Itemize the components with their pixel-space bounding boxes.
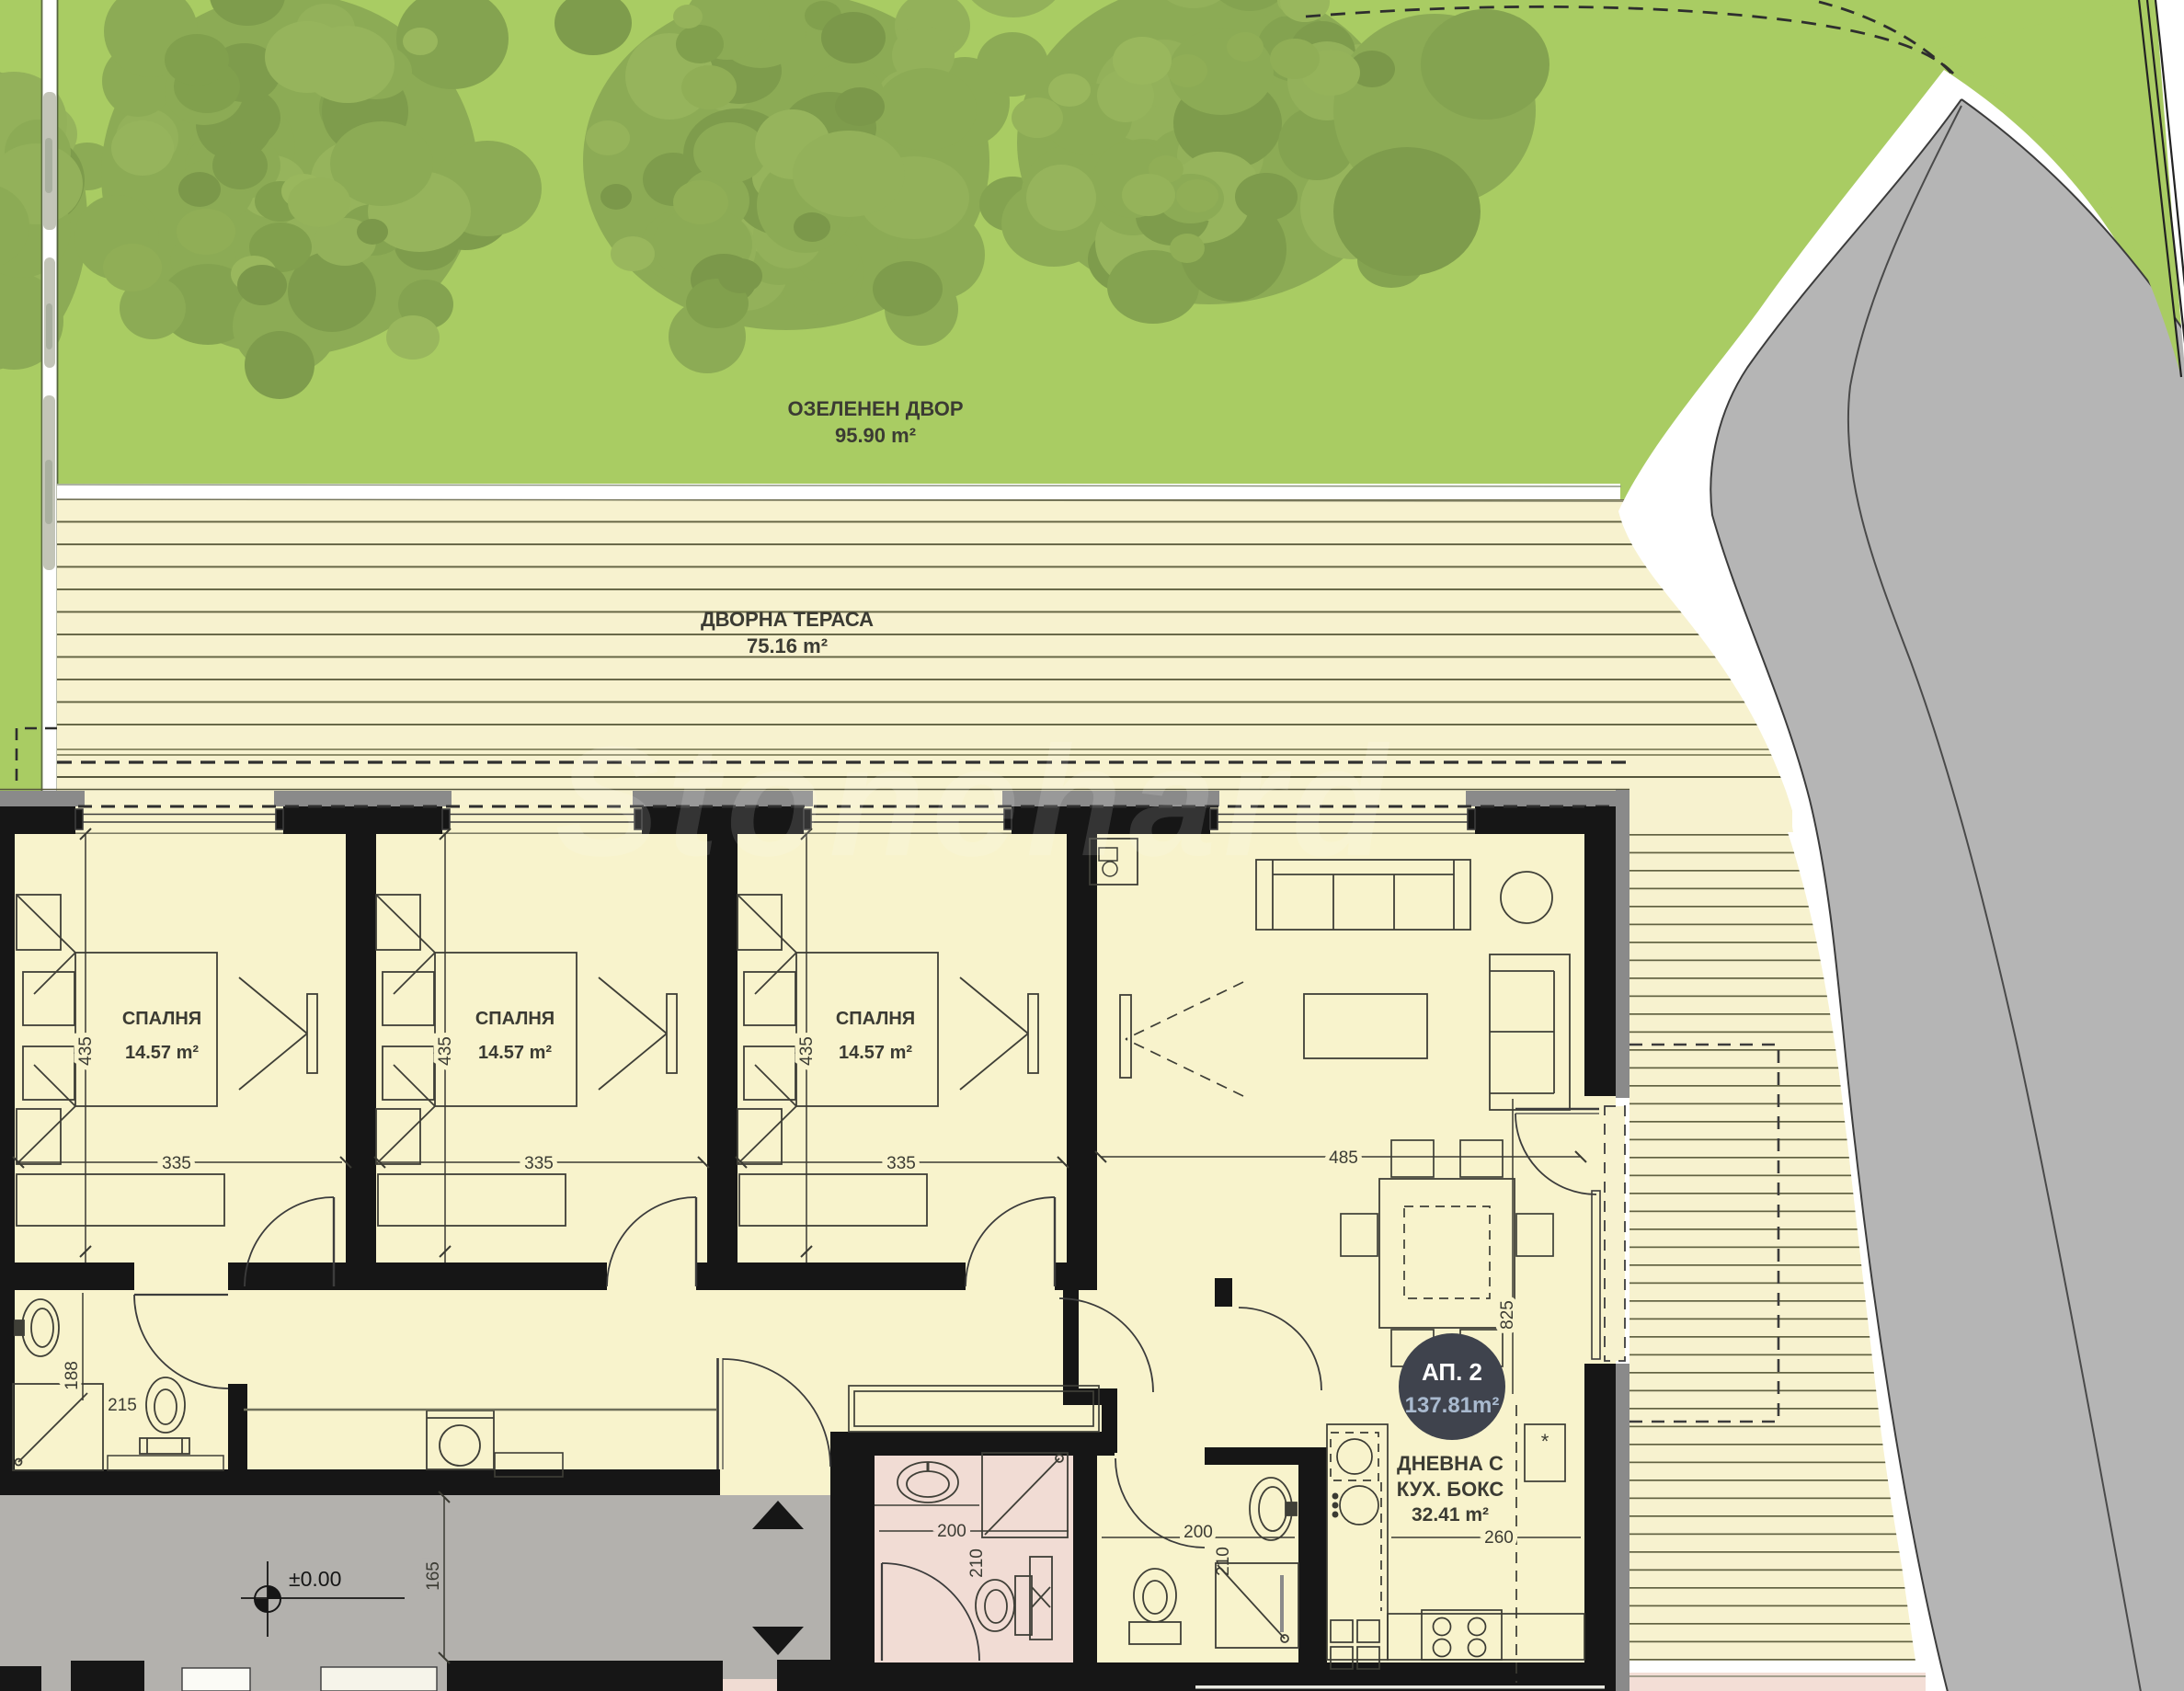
svg-text:95.90 m²: 95.90 m² — [835, 424, 916, 447]
svg-text:200: 200 — [937, 1522, 966, 1541]
svg-text:215: 215 — [108, 1396, 137, 1415]
svg-text:335: 335 — [524, 1154, 554, 1173]
svg-text:ОЗЕЛЕНЕН ДВОР: ОЗЕЛЕНЕН ДВОР — [787, 397, 963, 420]
svg-text:435: 435 — [76, 1036, 96, 1066]
svg-text:СПАЛНЯ: СПАЛНЯ — [836, 1009, 915, 1029]
svg-text:АП. 2: АП. 2 — [1422, 1358, 1482, 1386]
svg-text:СПАЛНЯ: СПАЛНЯ — [122, 1009, 201, 1029]
svg-text:ДВОРНА ТЕРАСА: ДВОРНА ТЕРАСА — [701, 608, 874, 631]
svg-text:32.41 m²: 32.41 m² — [1412, 1504, 1489, 1525]
svg-text:*: * — [1541, 1430, 1549, 1453]
svg-text:75.16 m²: 75.16 m² — [747, 634, 828, 657]
svg-text:260: 260 — [1484, 1528, 1514, 1548]
svg-text:210: 210 — [967, 1548, 987, 1578]
svg-text:ДНЕВНА С: ДНЕВНА С — [1397, 1452, 1504, 1475]
svg-text:335: 335 — [162, 1154, 191, 1173]
svg-text:14.57 m²: 14.57 m² — [125, 1043, 199, 1063]
svg-text:14.57 m²: 14.57 m² — [478, 1043, 552, 1063]
svg-text:137.81m²: 137.81m² — [1405, 1393, 1500, 1418]
svg-text:435: 435 — [797, 1036, 817, 1066]
svg-text:435: 435 — [436, 1036, 455, 1066]
svg-text:825: 825 — [1498, 1300, 1517, 1330]
svg-text:КУХ. БОКС: КУХ. БОКС — [1397, 1478, 1504, 1501]
svg-text:485: 485 — [1329, 1148, 1358, 1168]
svg-text:165: 165 — [424, 1561, 443, 1591]
svg-text:СПАЛНЯ: СПАЛНЯ — [475, 1009, 555, 1029]
svg-text:Stonehard: Stonehard — [555, 714, 1395, 889]
svg-text:14.57 m²: 14.57 m² — [839, 1043, 912, 1063]
svg-text:±0.00: ±0.00 — [289, 1567, 341, 1591]
svg-text:188: 188 — [63, 1361, 82, 1390]
svg-text:335: 335 — [886, 1154, 916, 1173]
svg-text:200: 200 — [1183, 1523, 1213, 1542]
svg-text:210: 210 — [1214, 1547, 1233, 1576]
